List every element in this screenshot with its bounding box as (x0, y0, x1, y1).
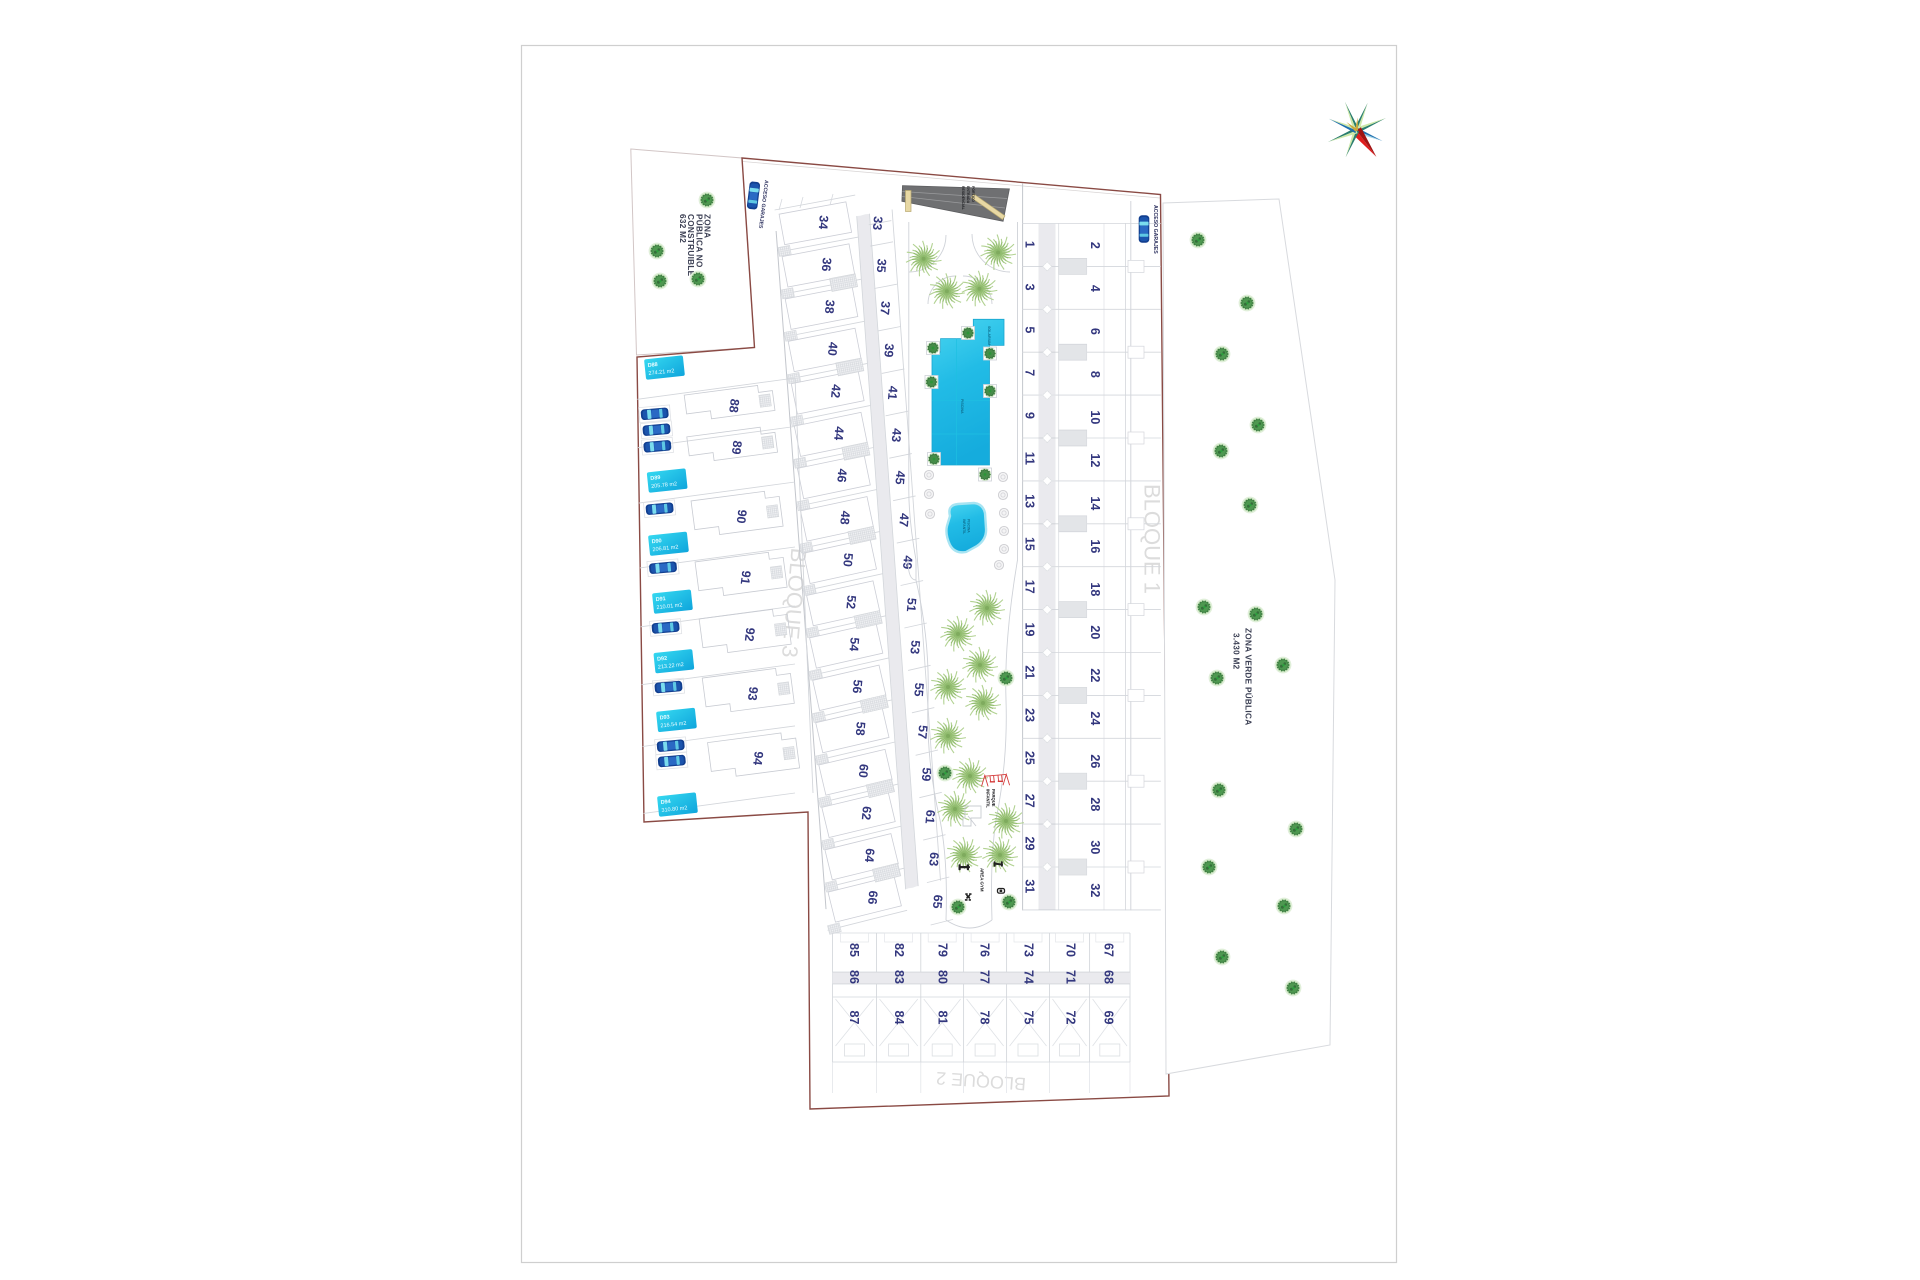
svg-text:D88: D88 (647, 362, 658, 369)
svg-text:58: 58 (853, 721, 868, 736)
svg-text:42: 42 (828, 384, 843, 399)
svg-text:9: 9 (1023, 412, 1037, 419)
svg-text:16: 16 (1088, 539, 1102, 553)
svg-text:69: 69 (1102, 1011, 1116, 1025)
svg-text:6: 6 (1088, 328, 1102, 335)
svg-text:27: 27 (1023, 794, 1037, 808)
svg-text:55: 55 (911, 682, 926, 697)
svg-text:28: 28 (1088, 797, 1102, 811)
svg-text:ENTRADA: ENTRADA (966, 186, 970, 204)
svg-text:11: 11 (1023, 452, 1037, 465)
svg-text:14: 14 (1088, 496, 1102, 510)
svg-text:8: 8 (1088, 371, 1102, 378)
svg-text:90: 90 (734, 509, 750, 525)
svg-text:41: 41 (885, 385, 900, 400)
svg-text:53: 53 (907, 640, 922, 655)
svg-text:D94: D94 (660, 799, 672, 806)
svg-text:85: 85 (847, 943, 861, 957)
svg-text:81: 81 (936, 1011, 950, 1025)
svg-text:RESIDENCIAL: RESIDENCIAL (961, 186, 965, 211)
svg-text:AREA GYM: AREA GYM (980, 868, 985, 892)
svg-text:71: 71 (1064, 970, 1078, 984)
svg-text:78: 78 (978, 1011, 992, 1025)
svg-text:PISCINA: PISCINA (967, 519, 971, 533)
svg-text:47: 47 (896, 512, 911, 527)
svg-text:61: 61 (922, 809, 937, 824)
svg-text:72: 72 (1064, 1011, 1078, 1025)
svg-text:12: 12 (1088, 453, 1102, 467)
svg-text:18: 18 (1088, 582, 1102, 596)
svg-text:48: 48 (837, 510, 852, 525)
svg-text:87: 87 (847, 1011, 861, 1025)
svg-text:73: 73 (1021, 943, 1035, 957)
svg-text:5: 5 (1023, 326, 1037, 333)
svg-text:ZONA VERDE PÚBLICA: ZONA VERDE PÚBLICA (1244, 628, 1255, 725)
svg-text:70: 70 (1064, 943, 1078, 957)
svg-text:38: 38 (822, 299, 837, 314)
svg-text:56: 56 (850, 679, 865, 694)
svg-text:39: 39 (881, 343, 896, 358)
svg-text:94: 94 (750, 750, 766, 766)
svg-text:46: 46 (834, 468, 849, 483)
svg-text:3.430 M2: 3.430 M2 (1232, 633, 1241, 670)
svg-text:68: 68 (1102, 970, 1116, 984)
svg-text:7: 7 (1023, 369, 1037, 376)
svg-text:67: 67 (1102, 943, 1116, 957)
svg-text:35: 35 (874, 258, 889, 273)
svg-text:54: 54 (847, 637, 862, 652)
svg-text:17: 17 (1023, 580, 1037, 594)
svg-text:INFANTIL: INFANTIL (962, 519, 966, 534)
svg-text:92: 92 (742, 627, 758, 643)
svg-text:24: 24 (1088, 711, 1102, 725)
svg-text:82: 82 (892, 943, 906, 957)
svg-text:88: 88 (726, 398, 742, 414)
svg-text:25: 25 (1023, 751, 1037, 765)
svg-text:62: 62 (859, 806, 874, 821)
svg-text:75: 75 (1021, 1011, 1035, 1025)
svg-text:29: 29 (1023, 837, 1037, 851)
svg-text:10: 10 (1088, 410, 1102, 424)
svg-text:49: 49 (900, 555, 915, 570)
svg-text:80: 80 (936, 970, 950, 984)
svg-text:83: 83 (892, 970, 906, 984)
svg-text:INFANTIL: INFANTIL (986, 789, 991, 808)
svg-text:ACCESO GARAJES: ACCESO GARAJES (1152, 205, 1158, 254)
svg-text:30: 30 (1088, 840, 1102, 854)
svg-text:2: 2 (1088, 242, 1102, 249)
svg-text:52: 52 (843, 595, 858, 610)
svg-text:19: 19 (1023, 623, 1037, 637)
svg-text:PÓRTICO: PÓRTICO (971, 186, 976, 202)
svg-text:33: 33 (870, 216, 885, 231)
svg-text:632 M2: 632 M2 (678, 214, 687, 243)
svg-text:3: 3 (1023, 284, 1037, 291)
svg-text:76: 76 (978, 943, 992, 957)
svg-text:43: 43 (889, 428, 904, 443)
svg-text:64: 64 (862, 848, 877, 863)
svg-text:20: 20 (1088, 625, 1102, 639)
svg-text:D90: D90 (651, 538, 662, 545)
svg-text:22: 22 (1088, 668, 1102, 682)
svg-text:D92: D92 (657, 656, 668, 663)
svg-text:84: 84 (892, 1011, 906, 1025)
svg-text:44: 44 (831, 426, 846, 441)
svg-text:89: 89 (729, 440, 745, 456)
svg-text:93: 93 (745, 686, 761, 702)
svg-text:66: 66 (865, 890, 880, 905)
svg-text:D93: D93 (659, 714, 670, 721)
svg-text:D91: D91 (655, 596, 666, 603)
svg-text:15: 15 (1023, 537, 1037, 551)
svg-text:45: 45 (892, 470, 907, 485)
svg-text:51: 51 (904, 597, 919, 612)
svg-text:60: 60 (856, 763, 871, 778)
svg-text:34: 34 (816, 215, 831, 230)
svg-text:23: 23 (1023, 708, 1037, 722)
svg-text:1: 1 (1023, 241, 1037, 248)
svg-text:50: 50 (840, 552, 855, 567)
svg-text:4: 4 (1088, 285, 1102, 292)
svg-text:63: 63 (926, 852, 941, 867)
svg-text:SOLARIUM: SOLARIUM (987, 326, 991, 345)
svg-text:26: 26 (1088, 754, 1102, 768)
svg-text:PISCINA: PISCINA (960, 399, 964, 414)
svg-text:37: 37 (877, 300, 892, 315)
svg-text:31: 31 (1023, 879, 1037, 893)
svg-text:86: 86 (847, 970, 861, 984)
svg-text:77: 77 (978, 970, 992, 984)
svg-text:74: 74 (1021, 970, 1035, 984)
svg-text:36: 36 (819, 257, 834, 272)
svg-text:32: 32 (1088, 883, 1102, 897)
svg-text:BLOQUE 1: BLOQUE 1 (1140, 484, 1165, 594)
svg-text:13: 13 (1023, 494, 1037, 508)
svg-text:21: 21 (1023, 665, 1037, 679)
svg-text:91: 91 (738, 570, 754, 586)
svg-text:PARQUE: PARQUE (991, 789, 996, 807)
svg-text:40: 40 (825, 341, 840, 356)
svg-text:65: 65 (930, 894, 945, 909)
svg-text:D89: D89 (650, 475, 661, 482)
svg-text:79: 79 (936, 943, 950, 957)
